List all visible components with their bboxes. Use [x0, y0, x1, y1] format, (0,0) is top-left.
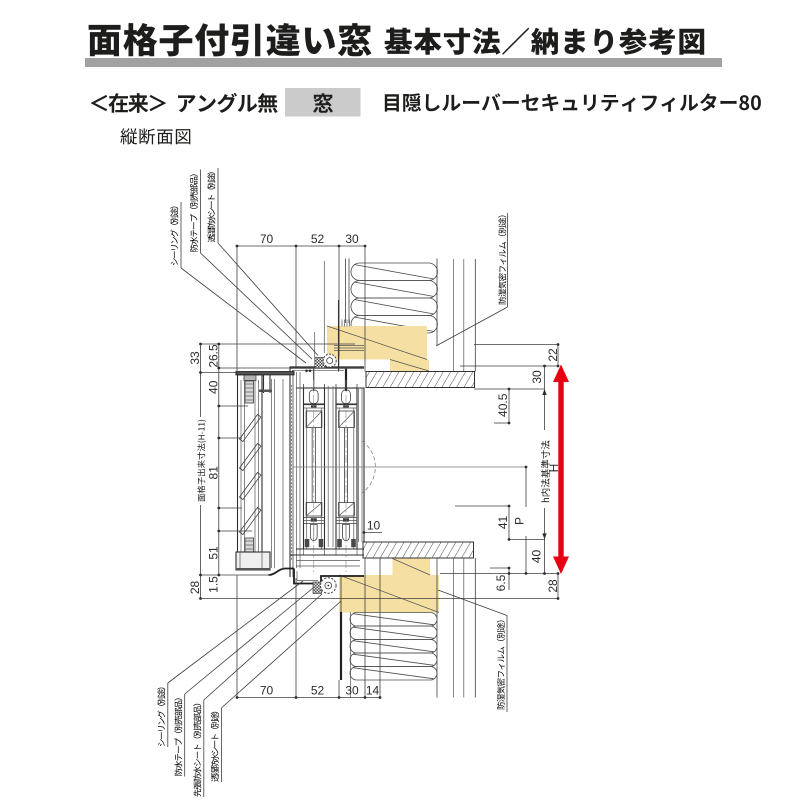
svg-text:26.5: 26.5	[207, 344, 221, 368]
svg-text:52: 52	[311, 684, 325, 698]
svg-text:10: 10	[367, 519, 381, 533]
svg-text:P: P	[513, 517, 527, 525]
svg-text:70: 70	[260, 232, 274, 246]
svg-text:30: 30	[345, 684, 359, 698]
svg-text:40: 40	[530, 550, 544, 564]
svg-text:40.5: 40.5	[496, 393, 510, 417]
svg-text:28: 28	[188, 581, 202, 595]
svg-text:70: 70	[260, 684, 274, 698]
svg-text:6.5: 6.5	[494, 574, 508, 591]
svg-text:14: 14	[366, 684, 380, 698]
svg-text:41: 41	[496, 516, 510, 530]
svg-text:1.5: 1.5	[207, 576, 221, 593]
svg-text:28: 28	[546, 579, 560, 593]
svg-text:22: 22	[546, 348, 560, 362]
svg-text:81: 81	[207, 466, 221, 480]
svg-text:30: 30	[345, 232, 359, 246]
svg-text:52: 52	[311, 232, 325, 246]
svg-text:51: 51	[207, 546, 221, 560]
svg-text:33: 33	[188, 351, 202, 365]
svg-text:30: 30	[530, 370, 544, 384]
svg-text:40: 40	[207, 380, 221, 394]
